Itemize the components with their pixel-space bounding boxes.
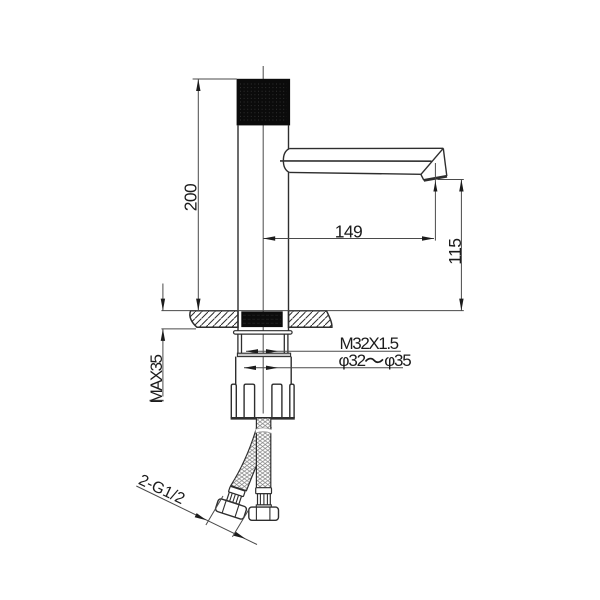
svg-text:200: 200 xyxy=(181,183,201,211)
svg-text:149: 149 xyxy=(335,221,362,241)
svg-text:MAX35: MAX35 xyxy=(147,354,166,403)
svg-text:φ32: φ32 xyxy=(339,351,366,370)
svg-text:115: 115 xyxy=(445,239,465,265)
svg-text:φ35: φ35 xyxy=(384,351,411,370)
